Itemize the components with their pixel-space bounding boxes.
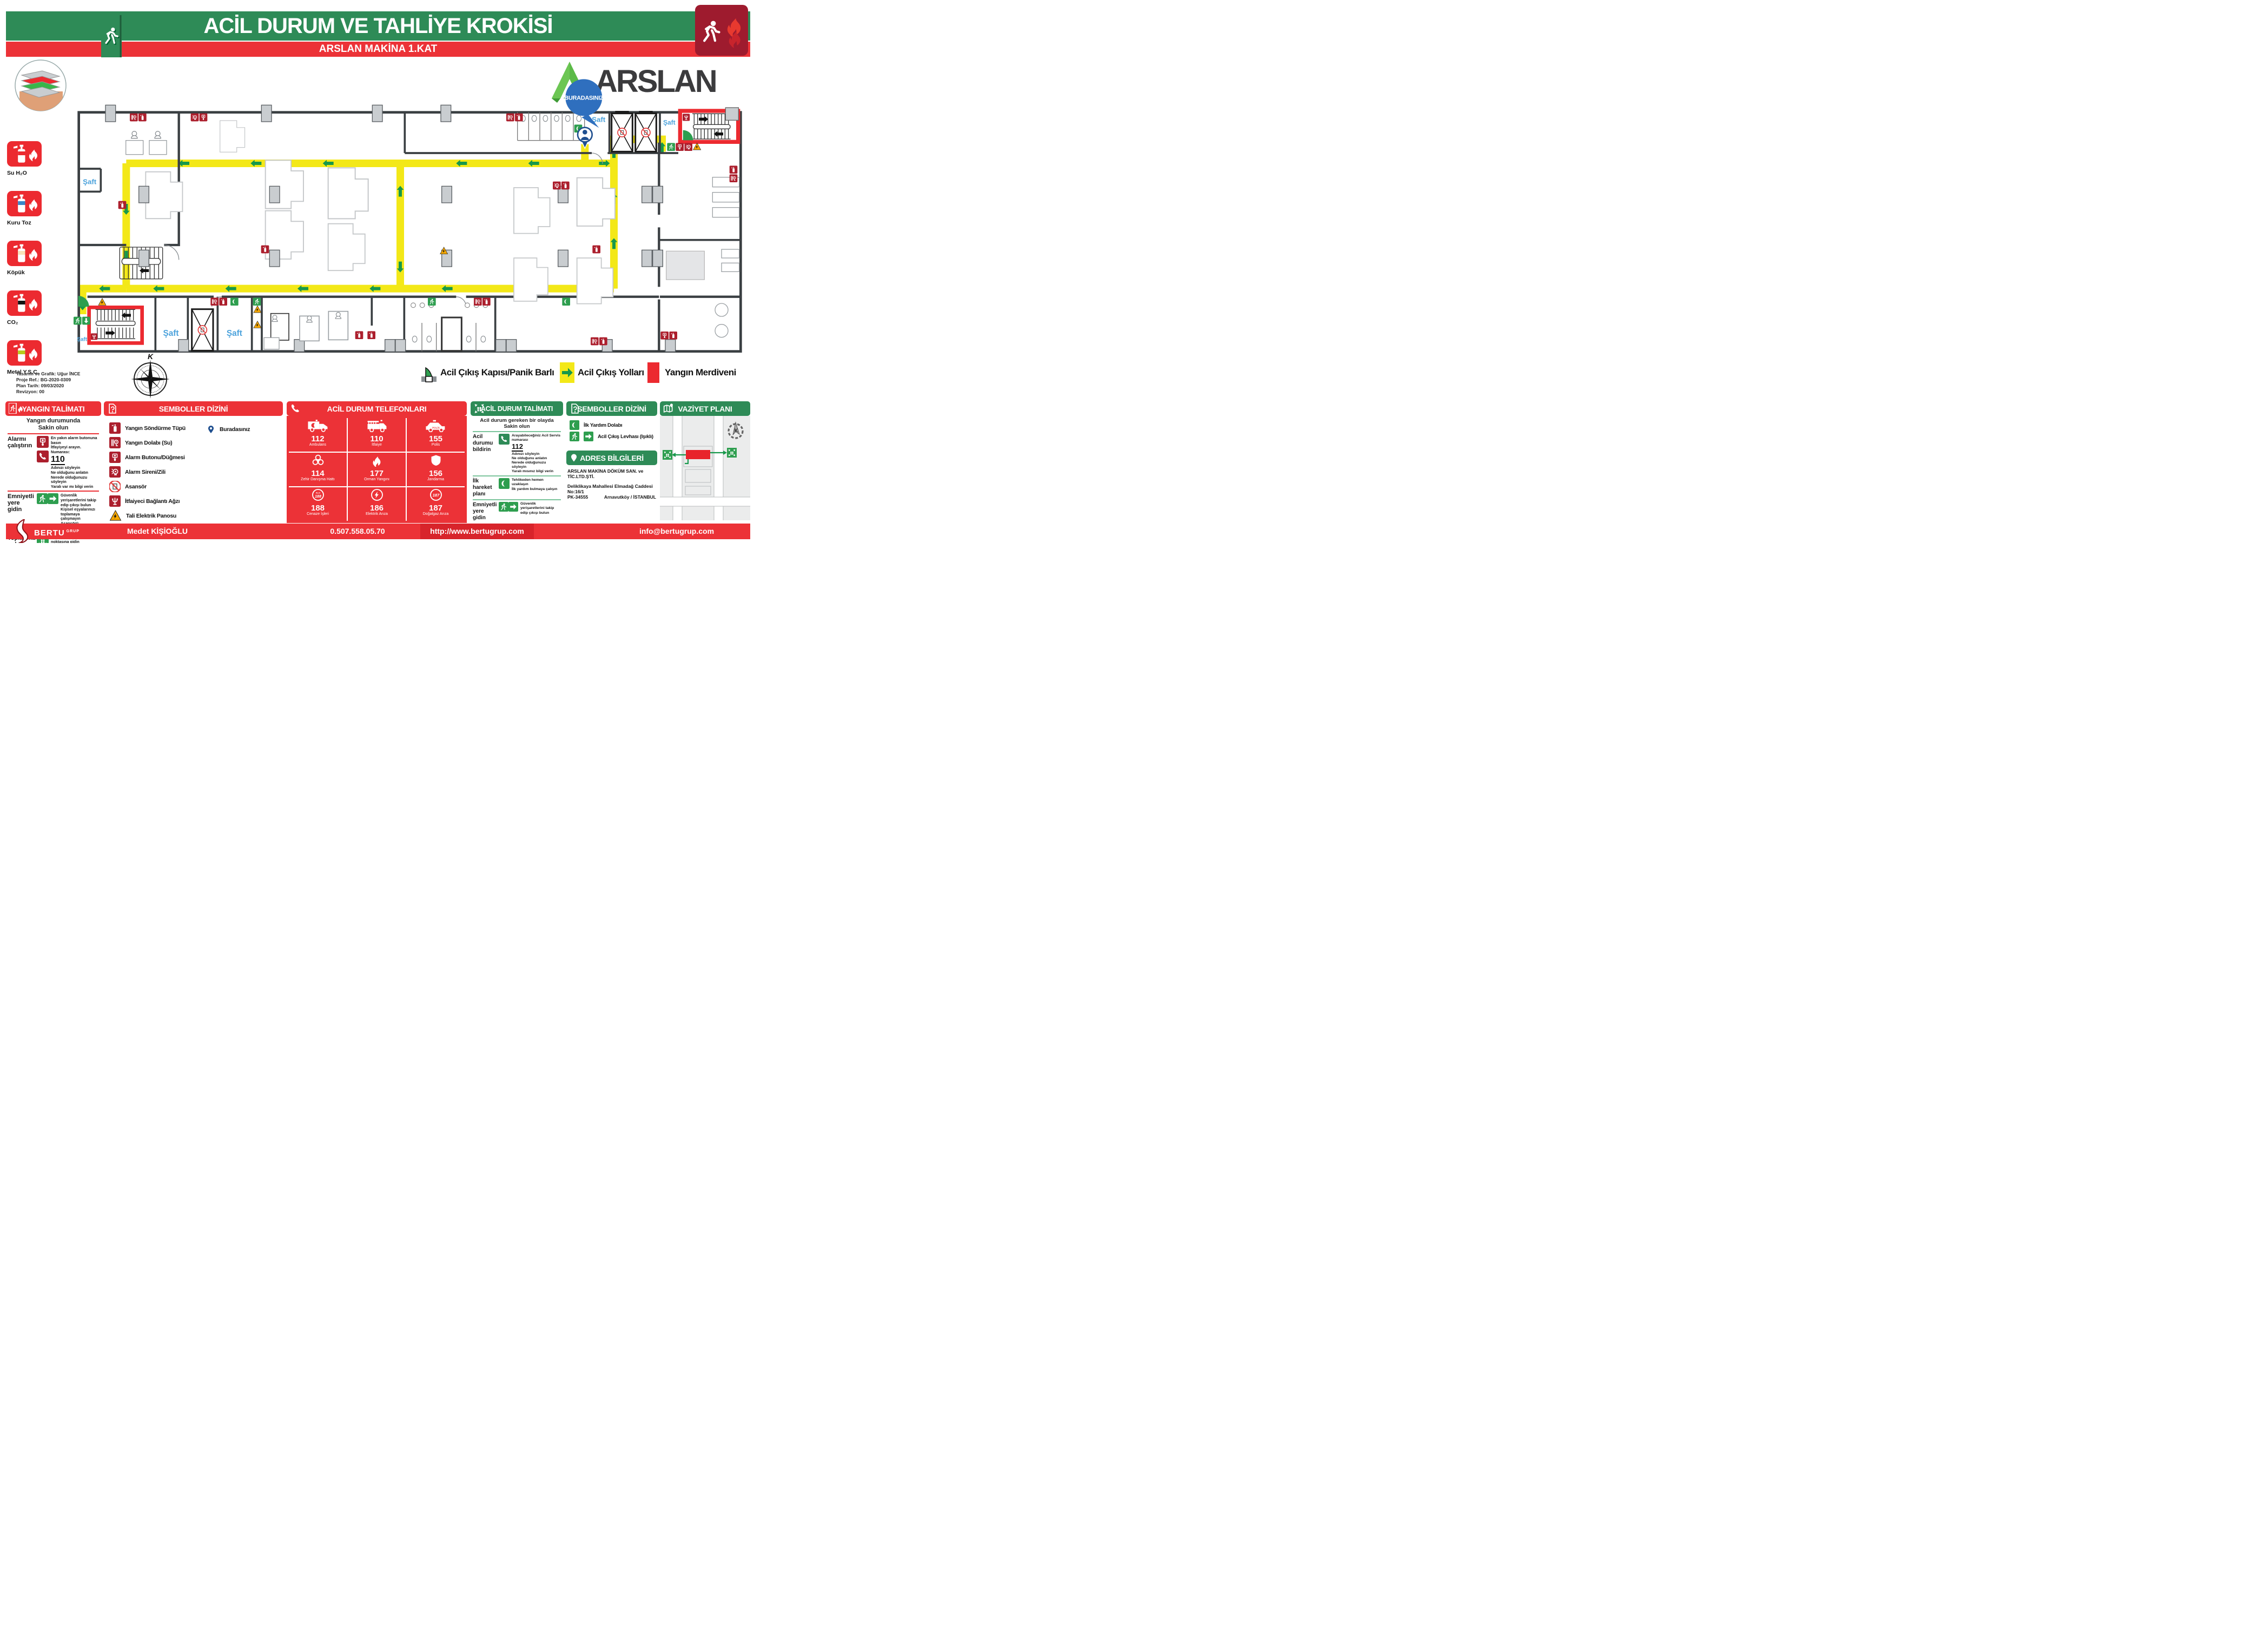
emergency-number: 110: [51, 455, 65, 465]
shaft-label: Şaft: [83, 177, 97, 186]
electric-fault-icon: [370, 488, 384, 501]
phone-label: Ambulans: [289, 443, 347, 447]
extinguisher-types: Su H₂O Kuru Toz Köpük: [7, 141, 59, 390]
info-line: Revizyon: 00: [16, 389, 80, 395]
phone-label: Zehir Danışma Hattı: [289, 478, 347, 482]
footer-name: Medet KİŞİOĞLU: [98, 524, 217, 539]
row-label: İlk hareket planı: [473, 478, 497, 498]
phone-label: Orman Yangını: [348, 478, 406, 482]
route-arrow-icon: [560, 362, 574, 383]
instruction-text: Nerede olduğunuzu söyleyin: [512, 461, 561, 469]
address-company: ARSLAN MAKİNA DÖKÜM SAN. ve TİC.LTD.ŞTİ.: [567, 468, 656, 479]
symbol-label: Buradasınız: [220, 426, 250, 433]
phone-tile: 187 187 Doğalgaz Arıza: [407, 487, 465, 521]
symbol-item: Yangın Dolabı (Su): [109, 437, 277, 448]
extinguisher-type-item: Su H₂O: [7, 141, 59, 176]
columns: [105, 105, 676, 352]
site-plan-panel: VAZİYET PLANI K: [660, 401, 750, 520]
first-aid-crescent-icon: [499, 478, 510, 489]
phone-icon: [290, 403, 301, 414]
exit-sign-icon: [37, 493, 48, 504]
elevators-top: [612, 111, 657, 151]
emergency-instructions-header: ACİL DURUM TALİMATI: [471, 401, 563, 416]
legend-fire-stair-label: Yangın Merdiveni: [665, 367, 736, 378]
panel-title: SEMBOLLER DİZİNİ: [159, 405, 228, 413]
alarm-bell-icon: [109, 466, 121, 478]
instruction-text: Güvenlik yerişaretlerini takip edip çıkı…: [520, 502, 561, 515]
symbol-label: İtfaiyeci Bağlantı Ağzı: [125, 498, 180, 505]
emergency-number: 112: [512, 443, 523, 452]
you-are-here-pin-icon: [207, 423, 215, 435]
phone-number: 177: [348, 469, 406, 478]
site-building: [686, 450, 710, 459]
arrow-right-icon: [508, 502, 518, 512]
symbol-item: İlk Yardım Dolabı: [570, 420, 654, 430]
first-aid-crescent-icon: [570, 420, 579, 430]
fire-extinguisher-icon: [7, 340, 42, 366]
alarm-button-icon: [37, 436, 49, 448]
symbol-item: İtfaiyeci Bağlantı Ağzı: [109, 495, 277, 507]
symbol-label: Alarm Butonu/Düğmesi: [125, 454, 185, 461]
extinguisher-type-item: Kuru Toz: [7, 191, 59, 226]
symbol-label: Yangın Söndürme Tüpü: [125, 425, 186, 432]
address-city: Arnavutköy / İSTANBUL: [604, 494, 656, 500]
fire-stair-top-right: [680, 108, 738, 142]
instruction-text: İlk yardım bulmaya çalışın: [512, 487, 561, 492]
symbol-label: Tali Elektrik Panosu: [126, 513, 176, 519]
floor-plan: Şaft Şaft Şaft Şaft Şaft Şaft BURADASINI…: [70, 74, 746, 363]
badge-text: ALO: [315, 492, 320, 494]
site-plan-map: K: [660, 416, 750, 520]
extinguisher-type-label: CO₂: [7, 319, 59, 326]
electric-panel-icon: [109, 510, 122, 521]
wc-bottom: [411, 303, 488, 352]
address-postcode: PK-34555: [567, 494, 588, 500]
exit-sign-icon: [499, 502, 508, 512]
fire-extinguisher-icon: [7, 141, 42, 167]
no-elevator-icon: [109, 481, 121, 492]
instruction-text: Tehlikeden hemen uzaklaşın: [512, 478, 561, 487]
phone-tile: 114 Zehir Danışma Hattı: [289, 453, 347, 486]
fire-exit-icon: [695, 5, 748, 56]
instruction-row: Alarmı çalıştırın En yakın alarm butonun…: [8, 436, 99, 489]
phone-label: Elektrik Arıza: [348, 512, 406, 516]
symbols-doc-icon: [570, 403, 580, 414]
phone-number: 156: [407, 469, 465, 478]
phone-tile: POLİS 155 Polis: [407, 418, 465, 452]
intro-line: Sakin olun: [8, 425, 99, 432]
symbol-item: Alarm Butonu/Düğmesi: [109, 452, 277, 463]
compass-letter: K: [148, 352, 154, 361]
footer-brand: BERTUGRUP: [34, 524, 83, 539]
panel-title: ADRES BİLGİLERİ: [580, 454, 644, 462]
badge-number: 188: [315, 495, 321, 499]
bertu-ribbon-icon: [14, 519, 35, 543]
building-layers-icon: [14, 59, 67, 112]
phone-icon: [37, 451, 49, 462]
fire-extinguisher-icon: [109, 422, 121, 434]
fire-extinguisher-icon: [7, 191, 42, 216]
shaft-label: Şaft: [663, 118, 676, 126]
shaft-label: Şaft: [227, 329, 242, 338]
instruction-text: Yaralı mısınız bilgi verin: [512, 469, 561, 474]
site-plan-header: VAZİYET PLANI: [660, 401, 750, 416]
symbol-label: Alarm Sireni/Zili: [125, 469, 166, 475]
phone-label: Polis: [407, 443, 465, 447]
instruction-text: İtfayiyeyi arayın. Numarası:: [51, 445, 99, 454]
phone-number: 186: [348, 504, 406, 512]
extinguisher-type-item: Metal Y.S.C.: [7, 340, 59, 375]
panel-title: ACİL DURUM TALİMATI: [481, 405, 553, 413]
footer-brand-sub: GRUP: [67, 529, 80, 533]
compass-rose: K: [131, 352, 169, 400]
exit-sign-icon: [570, 432, 579, 441]
fire-exit-icon: [9, 403, 25, 414]
footer-email: info@bertugrup.com: [623, 524, 731, 539]
symbols-left-header: SEMBOLLER DİZİNİ: [104, 401, 283, 416]
instruction-text: En yakın alarm butonuna basın: [51, 436, 99, 445]
symbol-item: Yangın Söndürme Tüpü: [109, 422, 277, 434]
symbols-panel-left: SEMBOLLER DİZİNİ Yangın Söndürme Tüpü Ya…: [104, 401, 283, 524]
row-label: Alarmı çalıştırın: [8, 436, 35, 489]
symbol-item: Tali Elektrik Panosu: [109, 510, 277, 521]
fire-extinguisher-icon: [7, 290, 42, 316]
phone-label: Cenaze İşleri: [289, 512, 347, 516]
machines: [146, 121, 615, 304]
phone-number: 188: [289, 504, 347, 512]
instruction-row: Emniyetli yere gidin Güvenlik yerişaretl…: [473, 502, 561, 521]
row-label: Emniyetli yere gidin: [473, 502, 497, 521]
symbol-label: İlk Yardım Dolabı: [584, 422, 622, 428]
panel-title: ACİL DURUM TELEFONLARI: [327, 405, 427, 413]
info-line: Proje Ref.: BG-2020-0309: [16, 377, 80, 383]
elevator-bottom: [192, 309, 213, 351]
you-are-here: BURADASINIZ: [564, 79, 604, 148]
police-car-text: POLİS: [432, 426, 440, 429]
intro-line: Acil durum gereken bir olayda: [473, 418, 561, 423]
symbol-label: Asansör: [125, 484, 147, 490]
fire-extinguisher-icon: [7, 241, 42, 266]
fire-truck-icon: [366, 419, 388, 432]
phone-label: İtfaiye: [348, 443, 406, 447]
emergency-phone-icon: [499, 434, 510, 445]
extinguisher-type-label: Köpük: [7, 269, 59, 276]
symbols-panel-right: SEMBOLLER DİZİNİ İlk Yardım Dolabı Acil …: [566, 401, 657, 503]
extinguisher-type-label: Su H₂O: [7, 170, 59, 176]
extinguisher-type-label: Kuru Toz: [7, 220, 59, 226]
fire-connection-icon: [109, 495, 121, 507]
phone-label: Doğalgaz Arıza: [407, 512, 465, 516]
phone-tile: ALO 188 188 Cenaze İşleri: [289, 487, 347, 521]
symbols-doc-icon: [107, 403, 118, 414]
ambulance-icon: [307, 419, 329, 432]
legend-route-item: [560, 362, 574, 386]
intro-line: Sakin olun: [473, 423, 561, 429]
address-header: ADRES BİLGİLERİ: [566, 451, 657, 465]
phone-label: Jandarma: [407, 478, 465, 482]
phone-number: 110: [348, 435, 406, 443]
arrow-right-icon: [48, 493, 58, 504]
evacuation-plan-sheet: ACİL DURUM VE TAHLİYE KROKİSİ ARSLAN MAK…: [0, 0, 756, 543]
phones-header: ACİL DURUM TELEFONLARI: [287, 401, 467, 416]
fire-stair-icon: [647, 362, 659, 383]
footer-bar: BERTUGRUP Medet KİŞİOĞLU 0.507.558.05.70…: [6, 524, 750, 539]
instruction-text: Güvenlik yerişaretlerini takip edip çıkı…: [61, 493, 99, 507]
instruction-row: İlk hareket planı Tehlikeden hemen uzakl…: [473, 478, 561, 498]
info-line: Tasarım ve Grafik: Uğur İNCE: [16, 371, 80, 377]
extinguisher-type-item: Köpük: [7, 241, 59, 276]
shaft-label: Şaft: [163, 329, 179, 338]
phone-tile: 110 İtfaiye: [348, 418, 406, 452]
shield-icon: [429, 454, 443, 467]
emergency-phones-panel: ACİL DURUM TELEFONLARI 112 Ambulans: [287, 401, 467, 523]
info-line: Plan Tarih: 09/03/2020: [16, 383, 80, 389]
gas-187-icon: 187: [429, 488, 443, 501]
symbol-label: Yangın Dolabı (Su): [125, 440, 172, 446]
symbol-label: Acil Çıkış Levhası (Işıklı): [598, 434, 653, 440]
row-label: Acil durumu bildirin: [473, 434, 497, 474]
legend-route-label: Acil Çıkış Yolları: [578, 367, 644, 378]
exit-door-icon: [421, 363, 437, 383]
address-line: Deliklikaya Mahallesi Elmadağ Caddesi No…: [567, 484, 656, 494]
fire-instructions-header: YANGIN TALİMATI: [5, 401, 101, 416]
police-car-icon: POLİS: [425, 419, 447, 432]
compass-letter: K: [735, 428, 738, 433]
phone-tile: 156 Jandarma: [407, 453, 465, 486]
assembly-point-icon: [474, 403, 485, 414]
phone-number: 114: [289, 469, 347, 478]
instruction-text: Adınızı söyleyin: [512, 452, 561, 456]
badge-number: 187: [432, 493, 439, 498]
location-pin-icon: [570, 452, 578, 463]
alo-188-icon: ALO 188: [311, 488, 325, 501]
phone-number: 112: [289, 435, 347, 443]
alarm-button-icon: [109, 452, 121, 463]
you-are-here-label: BURADASINIZ: [564, 95, 604, 101]
symbol-item: Buradasınız: [207, 423, 250, 435]
phone-tile: 112 Ambulans: [289, 418, 347, 452]
map-icon: [663, 403, 674, 414]
flame-icon: [370, 454, 384, 467]
panel-title: SEMBOLLER DİZİNİ: [577, 405, 646, 413]
shaft-label: Şaft: [77, 336, 88, 342]
footer-url: http://www.bertugrup.com: [420, 524, 534, 539]
phone-number: 187: [407, 504, 465, 512]
symbols-right-header: SEMBOLLER DİZİNİ: [566, 401, 657, 416]
symbol-item: Alarm Sireni/Zili: [109, 466, 277, 478]
phone-tile: 186 Elektrik Arıza: [348, 487, 406, 521]
exit-running-man-icon: [99, 14, 124, 59]
panel-title: YANGIN TALİMATI: [22, 405, 85, 413]
emergency-instructions-panel: ACİL DURUM TALİMATI Acil durum gereken b…: [471, 401, 563, 524]
fire-hose-icon: [109, 437, 121, 448]
footer-phone: 0.507.558.05.70: [298, 524, 417, 539]
symbol-item: Asansör: [109, 481, 277, 492]
instruction-text: Yaralı var mı bilgi verin: [51, 485, 99, 489]
panel-title: VAZİYET PLANI: [678, 405, 732, 413]
biohazard-icon: [311, 454, 325, 467]
instruction-text: Nerede olduğunuzu söyleyin: [51, 475, 99, 485]
symbol-item: Acil Çıkış Levhası (Işıklı): [570, 432, 654, 441]
extinguisher-type-item: CO₂: [7, 290, 59, 326]
legend-exit-door-label: Acil Çıkış Kapısı/Panik Barlı: [440, 367, 554, 378]
legend-exit-door-item: [421, 363, 437, 386]
instruction-text: Ne olduğunu anlatın: [512, 456, 561, 461]
arrow-right-icon: [584, 432, 593, 441]
plan-info-block: Tasarım ve Grafik: Uğur İNCE Proje Ref.:…: [16, 371, 80, 395]
phone-number: 155: [407, 435, 465, 443]
instruction-text: Kişisel eşyalarınızı toplamaya çalışmayı…: [61, 507, 99, 521]
intro-line: Yangın durumunda: [8, 418, 99, 425]
phone-tile: 177 Orman Yangını: [348, 453, 406, 486]
instruction-text: Arayabileceğiniz Acil Servis numarası: [512, 434, 561, 442]
instruction-row: Acil durumu bildirin Arayabileceğiniz Ac…: [473, 434, 561, 474]
